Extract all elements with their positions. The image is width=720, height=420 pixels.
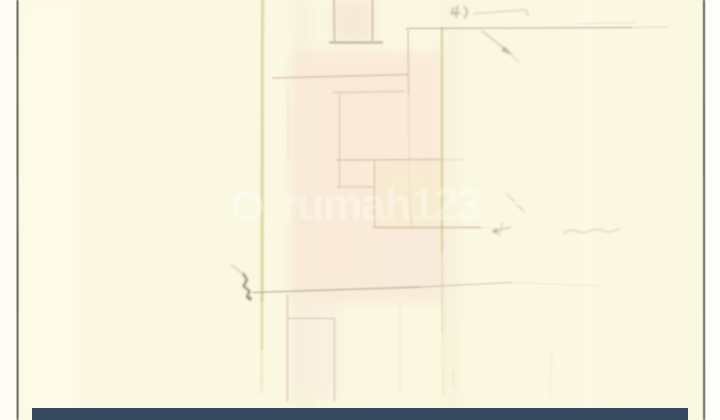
svg-text:rumah123: rumah123: [281, 179, 482, 230]
